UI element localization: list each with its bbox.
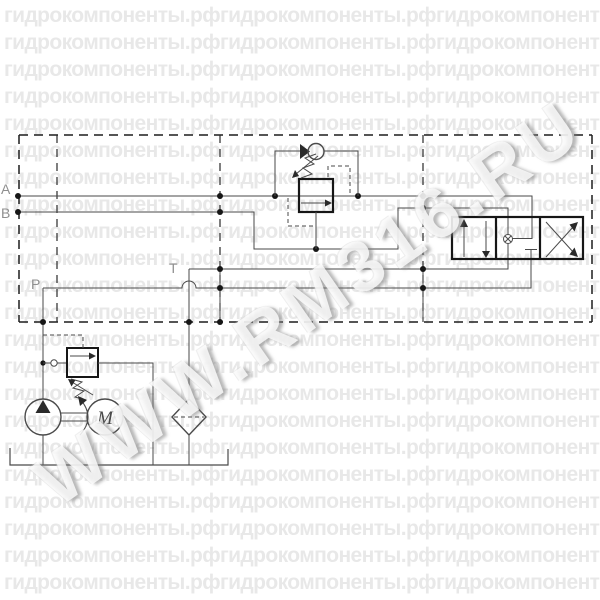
- port-label-p: P: [31, 276, 40, 292]
- port-label-t: T: [169, 260, 178, 276]
- port-label-b: B: [1, 205, 10, 221]
- pilot-line: [43, 335, 83, 348]
- schematic-page: гидрокомпоненты.рфгидрокомпоненты.рфгидр…: [0, 0, 600, 600]
- spring-icon: [301, 154, 316, 178]
- adjustment-arrow-icon: [296, 156, 318, 174]
- check-valve-icon: [275, 144, 358, 197]
- orifice-icon: [51, 360, 57, 366]
- pump-flow-triangle: [36, 400, 51, 413]
- port-label-a: A: [1, 181, 11, 197]
